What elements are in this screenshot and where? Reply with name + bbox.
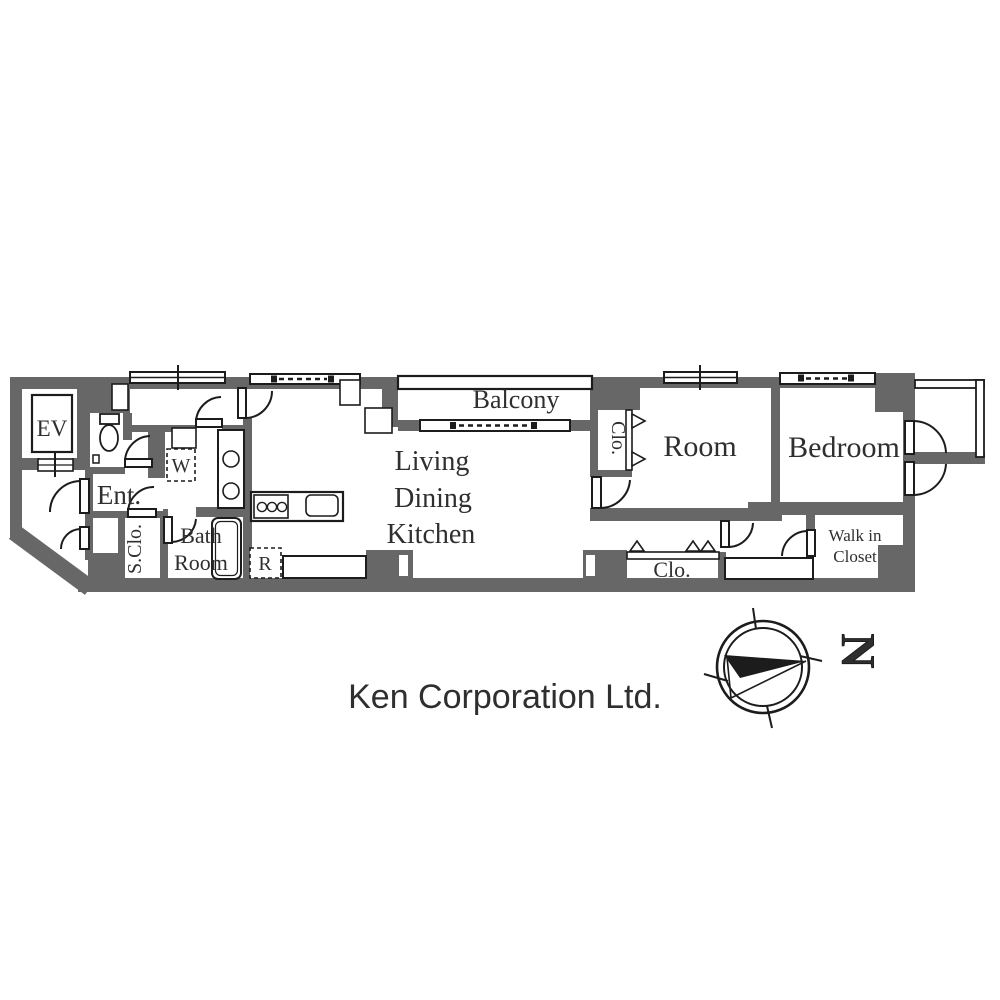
elevator-door: [38, 453, 73, 477]
door-room-from-ldk: [592, 477, 630, 508]
wall-ev-toilet-divider: [77, 385, 90, 470]
wall-balcony-stub-left: [398, 420, 420, 431]
door-toilet: [125, 436, 152, 467]
corridor-cabinet: [725, 558, 813, 579]
wall-closet-top-block: [592, 377, 640, 410]
watermark-text: Ken Corporation Ltd.: [348, 678, 662, 716]
door-hall-closet: [61, 527, 89, 549]
window-bedroom-top: [780, 373, 875, 384]
wall-below-closet: [88, 553, 122, 580]
column-1-slit: [399, 555, 408, 576]
floor-plan-page: EV Ent. S.Clo. Bath Room W R Living Dini…: [0, 0, 1000, 1000]
label-ldk-3: Kitchen: [387, 519, 476, 550]
wall-room-bedroom: [771, 382, 780, 512]
wall-bath-top-stub: [163, 509, 168, 517]
label-ldk-1: Living: [395, 446, 470, 477]
label-wic-1: Walk in: [829, 526, 882, 545]
label-closet-bottom: Clo.: [653, 557, 690, 582]
door-entrance: [50, 479, 89, 513]
ldk-corner-box: [365, 408, 392, 433]
label-bedroom: Bedroom: [788, 431, 900, 464]
label-bath-2: Room: [174, 550, 228, 575]
washroom-cabinet: [172, 428, 196, 448]
label-bath-1: Bath: [180, 523, 222, 548]
label-washer: W: [172, 455, 191, 477]
wall-balcony-stub-right: [568, 420, 593, 431]
wall-ev-bottom-right: [72, 458, 90, 470]
label-room: Room: [663, 430, 736, 463]
ldk-top-box: [340, 380, 360, 405]
wall-toilet-bottom: [88, 467, 125, 474]
wall-right-balcony-band: [903, 452, 985, 464]
door-room-from-corridor: [721, 521, 753, 547]
right-balcony-railing: [915, 380, 984, 457]
wall-bottom: [78, 578, 915, 592]
door-walk-in-closet: [782, 530, 815, 556]
compass-north-letter: N: [831, 634, 884, 669]
kitchen-counter: [251, 492, 343, 521]
label-entrance: Ent.: [97, 480, 141, 510]
wall-left: [10, 377, 22, 537]
wall-closet-mid-bottom: [592, 470, 632, 477]
column-2-slit: [586, 555, 595, 576]
door-bedroom-balcony-upper: [905, 421, 946, 454]
sink-icon: [306, 495, 338, 516]
door-washroom: [196, 397, 222, 427]
label-wic-2: Closet: [833, 547, 877, 566]
label-ldk-2: Dining: [394, 483, 472, 514]
door-ldk: [238, 388, 272, 418]
floor-plan-canvas: EV Ent. S.Clo. Bath Room W R Living Dini…: [0, 0, 1000, 1000]
label-balcony: Balcony: [473, 385, 560, 414]
pipe-shaft: [112, 384, 128, 410]
label-closet-mid: Clo.: [607, 421, 629, 455]
wall-bedroom-corner-block: [875, 373, 915, 412]
vanity-counter: [218, 430, 244, 508]
label-ev: EV: [37, 416, 68, 441]
door-bedroom-balcony-lower: [905, 462, 946, 495]
label-refrigerator: R: [258, 553, 272, 575]
compass: N: [704, 608, 884, 728]
wall-washroom-left: [148, 425, 165, 478]
wall-wic-notch: [878, 545, 915, 585]
window-balcony-sliding: [420, 420, 570, 431]
toilet-icon: [93, 414, 119, 463]
label-shoe-closet: S.Clo.: [124, 524, 146, 574]
ldk-low-counter: [283, 556, 366, 578]
wall-ent-sclo-a: [85, 511, 128, 518]
